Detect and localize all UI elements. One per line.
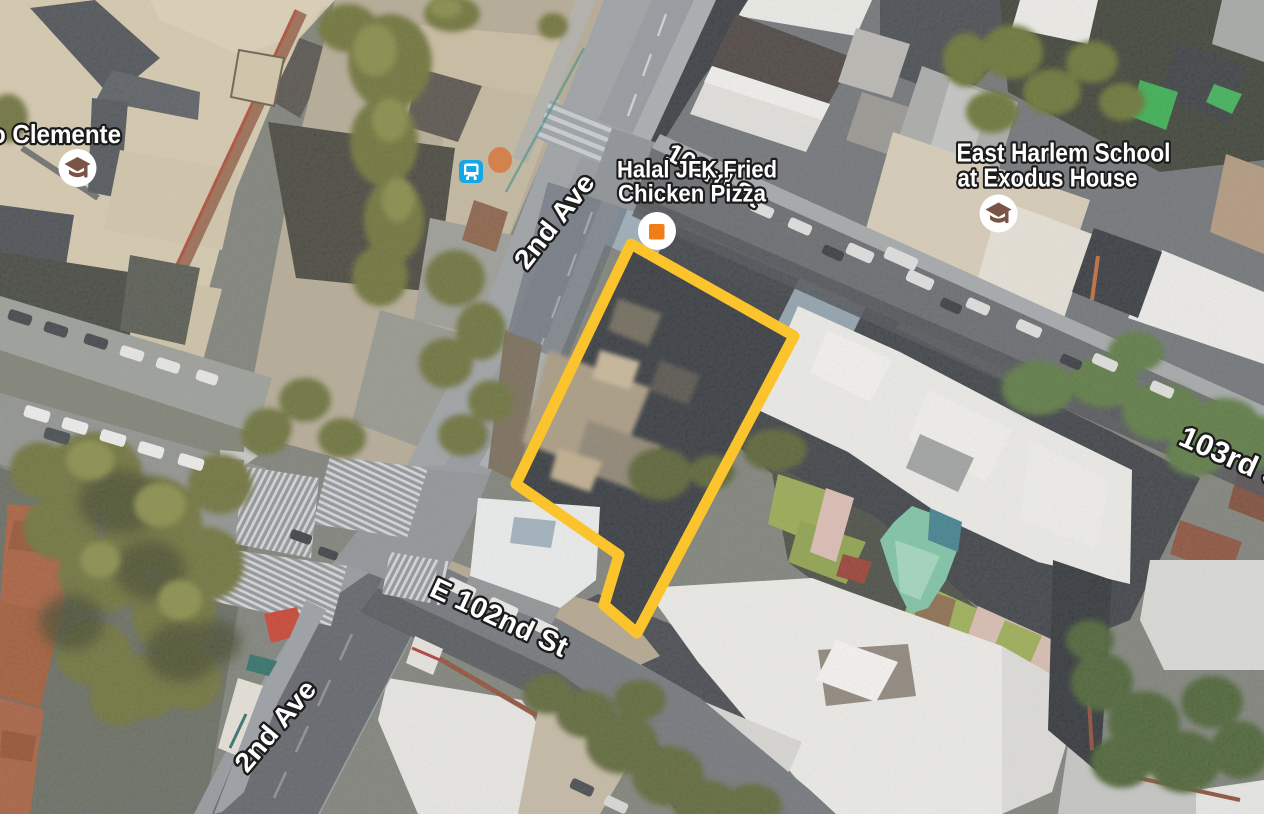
svg-text:Halal JFK Fried: Halal JFK Fried [617, 157, 777, 184]
svg-text:Chicken Pizza: Chicken Pizza [618, 181, 767, 208]
svg-text:o Clemente: o Clemente [0, 119, 121, 149]
svg-text:at Exodus House: at Exodus House [958, 163, 1138, 193]
